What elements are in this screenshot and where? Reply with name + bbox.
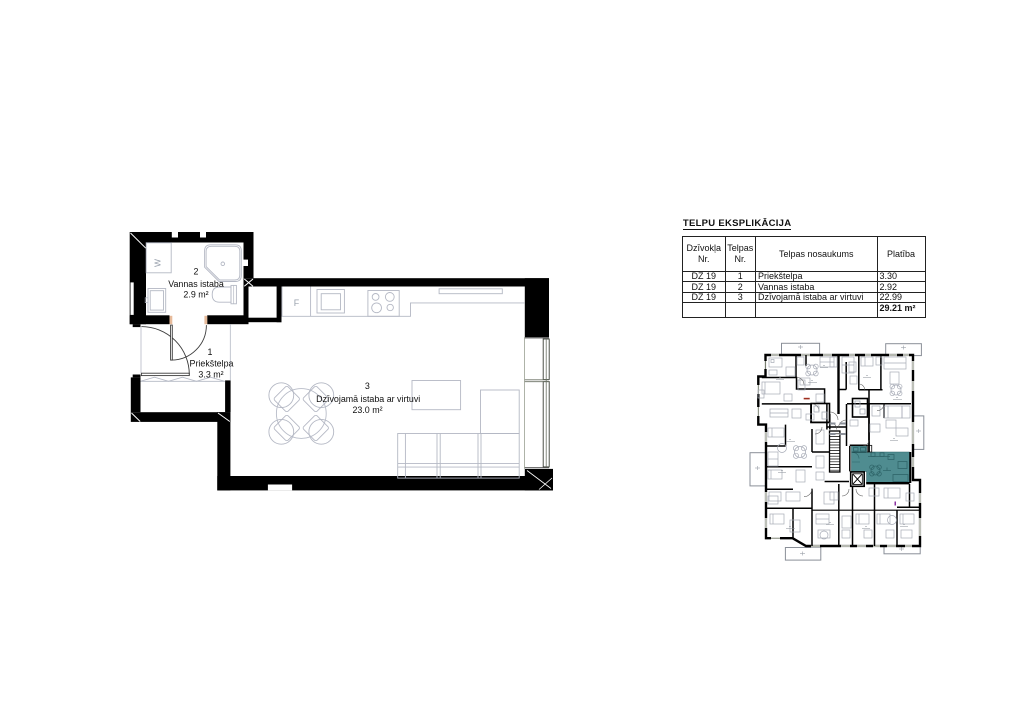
svg-text:W: W xyxy=(153,259,163,267)
svg-text:23.0 m²: 23.0 m² xyxy=(352,405,382,415)
svg-text:Vannas istaba: Vannas istaba xyxy=(168,279,224,289)
svg-text:Priekštelpa: Priekštelpa xyxy=(190,359,234,369)
svg-text:2.9 m²: 2.9 m² xyxy=(183,290,208,300)
svg-text:F: F xyxy=(294,298,300,308)
svg-text:1: 1 xyxy=(208,347,213,357)
svg-text:Dzīvojamā istaba ar virtuvi: Dzīvojamā istaba ar virtuvi xyxy=(316,394,420,404)
svg-text:2: 2 xyxy=(194,267,199,277)
svg-text:3: 3 xyxy=(365,381,370,391)
svg-text:3.3 m²: 3.3 m² xyxy=(198,370,223,380)
